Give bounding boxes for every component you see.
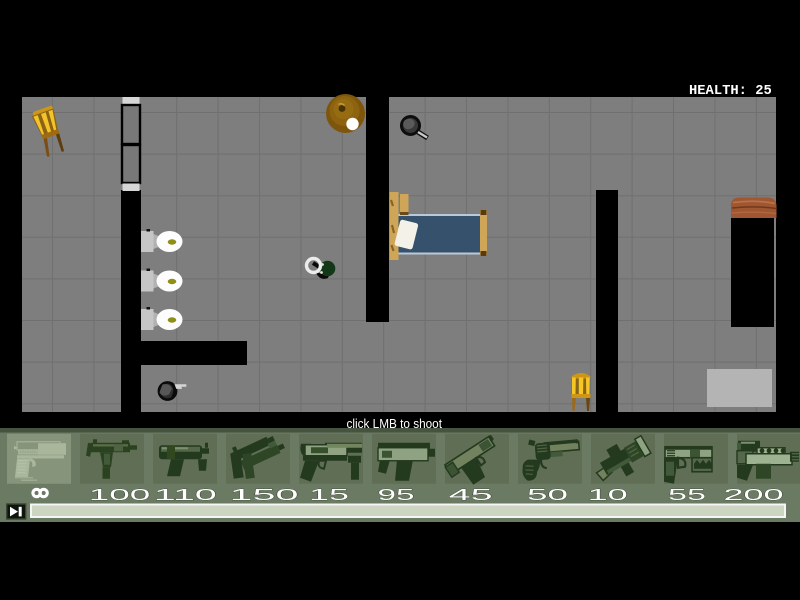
svg-text:45: 45	[449, 487, 493, 504]
svg-text:55: 55	[668, 487, 706, 504]
svg-text:15: 15	[309, 487, 349, 504]
svg-text:95: 95	[378, 487, 415, 504]
svg-text:110: 110	[154, 487, 217, 504]
svg-text:50: 50	[527, 487, 568, 504]
svg-text:10: 10	[588, 487, 628, 504]
svg-text:150: 150	[230, 487, 299, 504]
svg-text:100: 100	[89, 487, 151, 504]
svg-text:HEALTH: 25: HEALTH: 25	[689, 84, 772, 99]
svg-text:200: 200	[724, 487, 784, 504]
